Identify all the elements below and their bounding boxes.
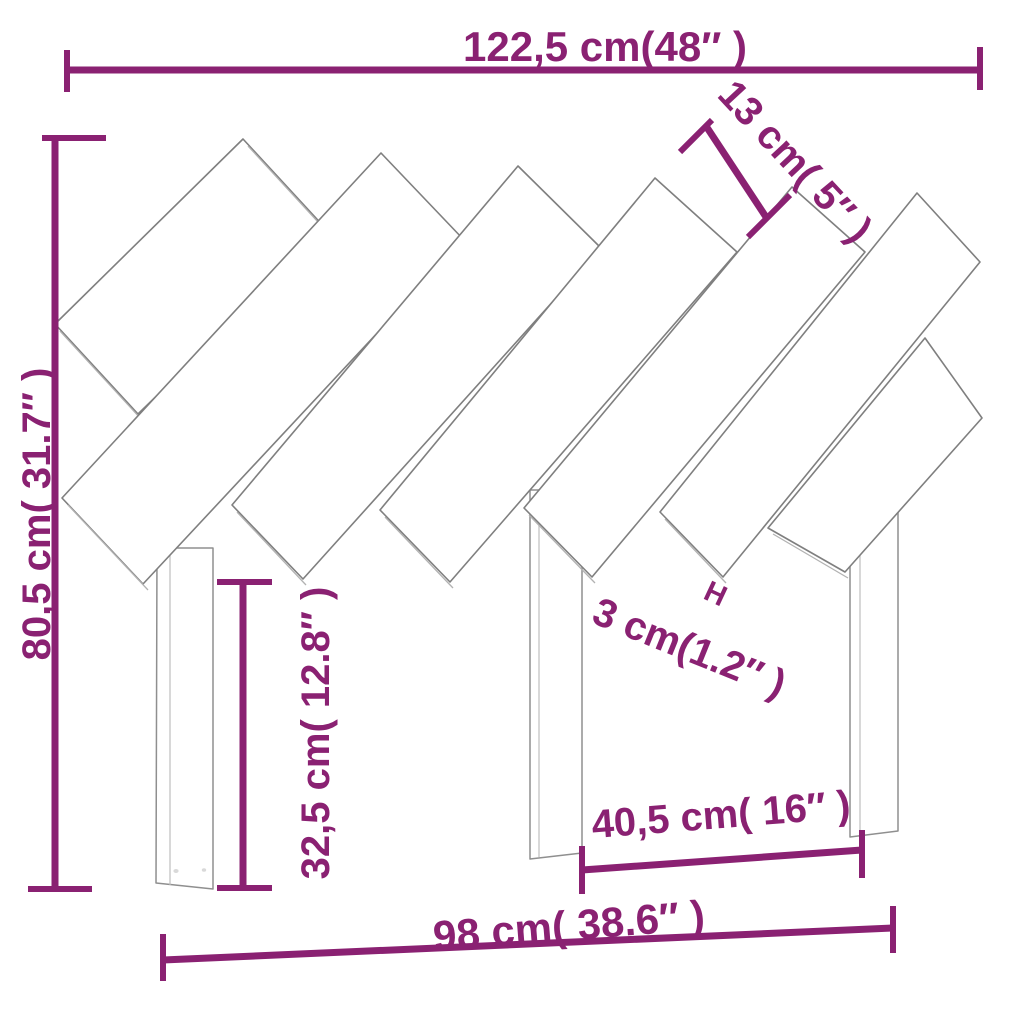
left-leg-knot-2 bbox=[202, 868, 206, 872]
leg-height-label: 32,5 cm( 12.8″ ) bbox=[294, 587, 338, 880]
total-width-label: 122,5 cm(48″ ) bbox=[463, 23, 747, 70]
left-leg bbox=[156, 548, 213, 889]
left-leg-knot-1 bbox=[173, 869, 178, 873]
total-height-label: 80,5 cm( 31.7″ ) bbox=[15, 368, 59, 661]
dimension-diagram: 122,5 cm(48″ ) 13 cm( 5″ ) 80,5 cm( 31.7… bbox=[0, 0, 1024, 1024]
headboard-diagram-canvas: 122,5 cm(48″ ) 13 cm( 5″ ) 80,5 cm( 31.7… bbox=[0, 0, 1024, 1024]
